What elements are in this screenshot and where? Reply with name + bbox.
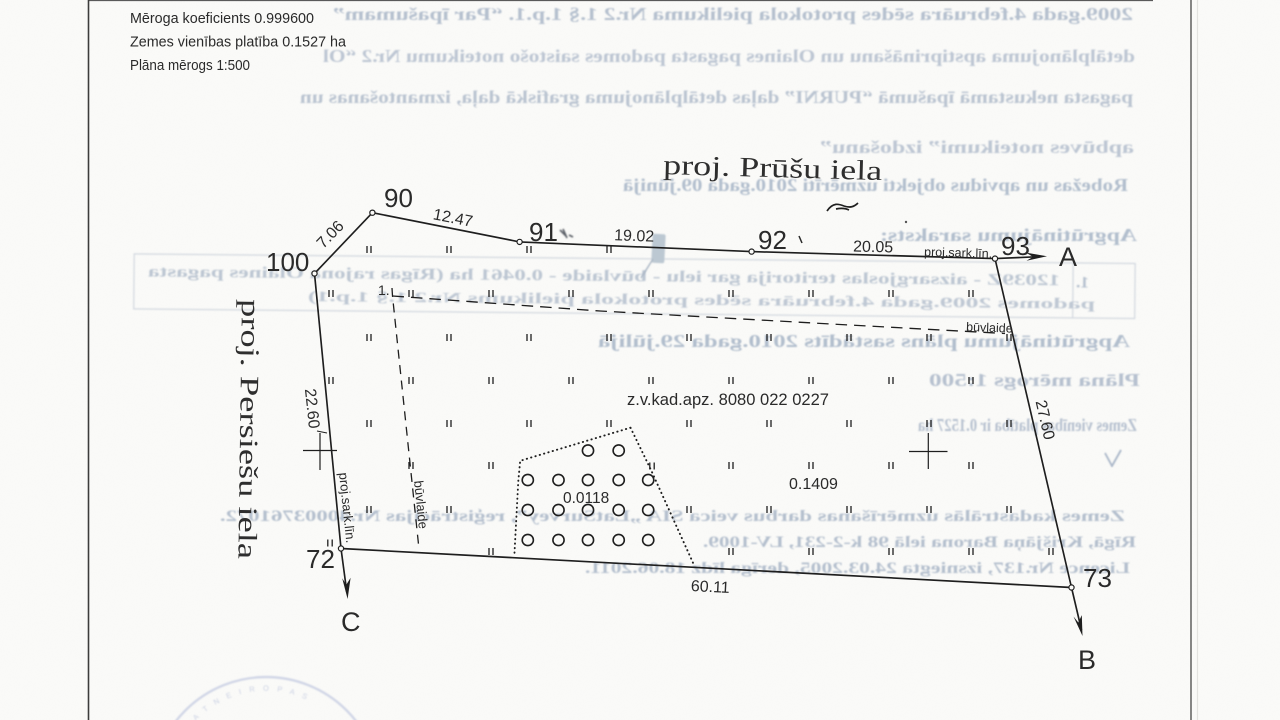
svg-text:pagasta nekustamā īpašumā “PUR: pagasta nekustamā īpašumā “PURNI” daļas … (300, 87, 1133, 108)
svg-text:19.02: 19.02 (614, 227, 655, 245)
svg-text:100: 100 (266, 247, 309, 277)
svg-text:60.11: 60.11 (690, 578, 730, 597)
svg-text:A: A (1059, 242, 1077, 272)
svg-text:20.05: 20.05 (853, 238, 894, 256)
svg-text:būvlaide: būvlaide (966, 320, 1013, 336)
svg-text:93: 93 (1001, 231, 1030, 261)
svg-text:Plāna mērogs 1:500: Plāna mērogs 1:500 (929, 370, 1140, 390)
svg-text:0.0118: 0.0118 (563, 490, 609, 507)
svg-text:Licence Nr.137, izsniegta 24.0: Licence Nr.137, izsniegta 24.03.2005, de… (585, 560, 1130, 577)
svg-text:0.1409: 0.1409 (789, 476, 838, 493)
svg-text:proj.sark.līn.: proj.sark.līn. (924, 245, 992, 261)
svg-text:1.: 1. (378, 282, 390, 298)
svg-text:2009.gada 4.februāra sēdes pro: 2009.gada 4.februāra sēdes protokola pie… (333, 4, 1133, 24)
svg-text:detālplānojuma apstiprināšanu: detālplānojuma apstiprināšanu un Olaines… (323, 46, 1135, 66)
svg-text:Zemes vienības platība ir 0.15: Zemes vienības platība ir 0.1527 ha (918, 415, 1137, 435)
svg-text:Rīgā, Krišjāņa Barona ielā 98: Rīgā, Krišjāņa Barona ielā 98 k-2-231, L… (703, 534, 1136, 551)
svg-text:apbūves noteikumi” izdošanu”: apbūves noteikumi” izdošanu” (820, 137, 1134, 157)
svg-text:z.v.kad.apz. 8080 022 0227: z.v.kad.apz. 8080 022 0227 (627, 390, 829, 409)
svg-text:92: 92 (758, 225, 787, 255)
svg-text:72: 72 (306, 544, 335, 574)
svg-text:proj. Prūšu iela: proj. Prūšu iela (663, 150, 884, 187)
svg-text:proj. Persiešu iela: proj. Persiešu iela (232, 299, 266, 560)
svg-text:73: 73 (1083, 563, 1112, 593)
svg-text:Apgrūtinājumu plāns sastādīts: Apgrūtinājumu plāns sastādīts 2010.gada … (598, 331, 1130, 351)
svg-text:Zemes vienības platība 0.1527: Zemes vienības platība 0.1527 ha (130, 34, 347, 51)
svg-text:Plāna mērogs 1:500: Plāna mērogs 1:500 (130, 57, 250, 74)
svg-text:C: C (341, 607, 361, 637)
svg-text:91: 91 (529, 217, 558, 247)
svg-text:1.: 1. (1076, 274, 1089, 291)
svg-text:B: B (1078, 645, 1096, 675)
svg-text:Mēroga koeficients 0.999600: Mēroga koeficients 0.999600 (130, 10, 314, 27)
svg-text:90: 90 (384, 183, 413, 213)
